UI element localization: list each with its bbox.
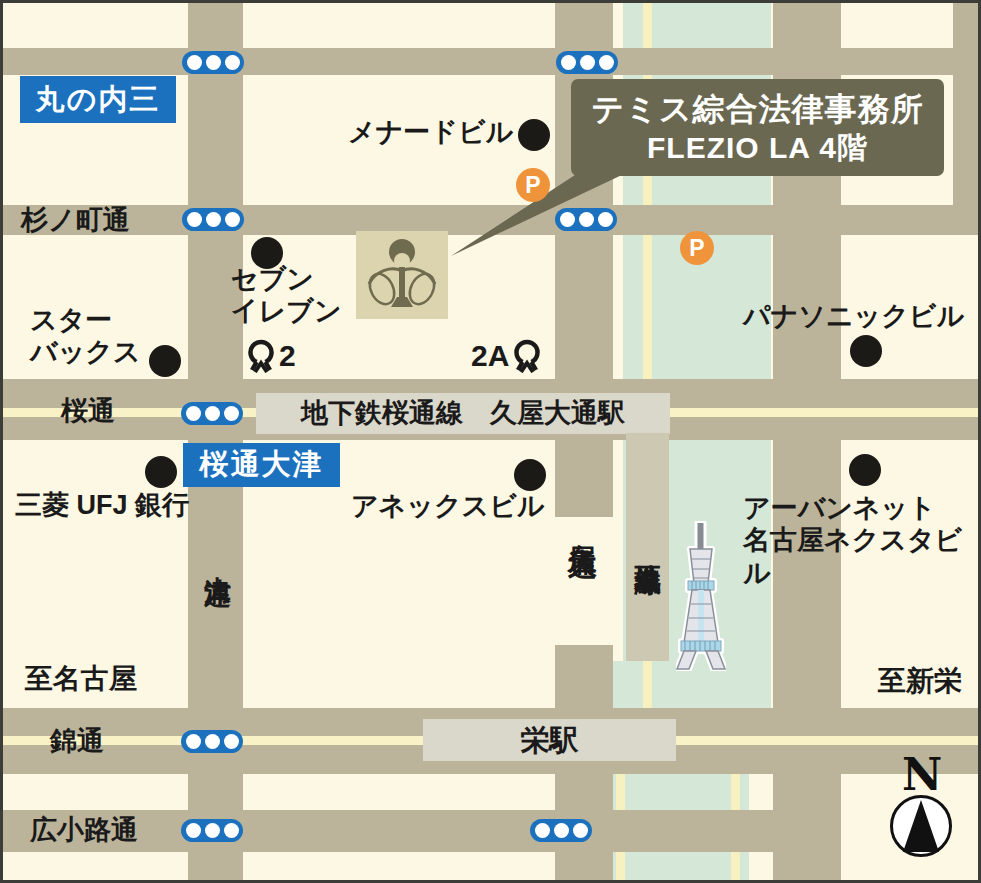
poi-label-seven-eleven: セブン イレブン <box>231 263 342 328</box>
street-label-nishiki: 錦通 <box>50 725 104 757</box>
meijo-line-label: 地下鉄名城線 <box>632 544 663 550</box>
compass-icon <box>890 795 952 857</box>
street-label-otsudori: 大津通 <box>201 555 233 561</box>
tv-tower-icon <box>676 521 726 671</box>
subway-exit-number: 2A <box>471 339 509 373</box>
street-label-suginomachi: 杉ノ町通 <box>21 204 130 236</box>
compass-north-label: N <box>902 749 942 800</box>
street-label-hirokoji: 広小路通 <box>30 814 138 846</box>
north-arrow-icon <box>903 800 939 852</box>
road-top <box>3 48 981 75</box>
sakuradori-line-band: 地下鉄桜通線 久屋大通駅 <box>256 393 670 434</box>
traffic-signal-icon <box>182 208 244 231</box>
poi-label-starbucks: スター バックス <box>30 304 141 369</box>
traffic-signal-icon <box>182 51 244 74</box>
road-far-right <box>953 3 981 226</box>
traffic-signal-icon <box>556 51 618 74</box>
street-label-hisaya-odori: 久屋大通 <box>565 521 600 529</box>
office-name: テミス綜合法律事務所 <box>591 89 923 129</box>
office-floor: FLEZIO LA 4階 <box>647 129 868 167</box>
street-label-sakuradori: 桜通 <box>61 395 115 427</box>
parking-icon: P <box>516 168 550 202</box>
poi-label-panasonic-bldg: パナソニックビル <box>743 300 964 332</box>
hisaya-label-backing <box>546 517 616 645</box>
traffic-signal-icon <box>555 208 617 231</box>
poi-dot-icon <box>145 456 177 488</box>
subway-exit-icon <box>512 339 542 373</box>
subway-exit-2: 2 <box>246 339 296 373</box>
poi-label-urbannet-nexta-bldg: アーバンネット 名古屋ネクスタビル <box>743 492 978 589</box>
poi-label-annex-bldg: アネックスビル <box>351 490 544 522</box>
poi-dot-icon <box>514 459 546 491</box>
traffic-signal-icon <box>530 819 592 842</box>
office-building <box>356 231 448 319</box>
direction-to-nagoya: 至名古屋 <box>25 662 137 696</box>
office-logo-icon <box>356 231 448 319</box>
badge-sakuradori-otsu: 桜通大津 <box>183 443 340 487</box>
sakuradori-line-station-label: 地下鉄桜通線 久屋大通駅 <box>301 397 625 429</box>
badge-marunouchi: 丸の内三 <box>20 76 176 123</box>
subway-exit-2a: 2A <box>471 339 542 373</box>
subway-exit-icon <box>246 339 276 373</box>
traffic-signal-icon <box>181 730 243 753</box>
office-callout: テミス綜合法律事務所 FLEZIO LA 4階 <box>571 79 944 176</box>
access-map: 地下鉄桜通線 久屋大通駅 地下鉄名城線 栄駅 テミス綜合法律事務所 FLEZIO… <box>0 0 981 883</box>
sakae-station-band: 栄駅 <box>423 719 676 761</box>
poi-label-mufg-bank: 三菱 UFJ 銀行 <box>15 489 189 521</box>
traffic-signal-icon <box>181 402 243 425</box>
traffic-signal-icon <box>181 819 243 842</box>
meijo-line-band: 地下鉄名城線 <box>626 433 669 661</box>
poi-dot-icon <box>849 454 881 486</box>
subway-exit-number: 2 <box>279 339 296 373</box>
sakae-station-label: 栄駅 <box>521 723 579 758</box>
poi-dot-icon <box>850 335 882 367</box>
poi-label-menard-bldg: メナードビル <box>348 116 513 148</box>
direction-to-shinsakae: 至新栄 <box>878 664 962 698</box>
poi-dot-icon <box>149 345 181 377</box>
parking-icon: P <box>680 231 714 265</box>
poi-dot-icon <box>518 119 550 151</box>
